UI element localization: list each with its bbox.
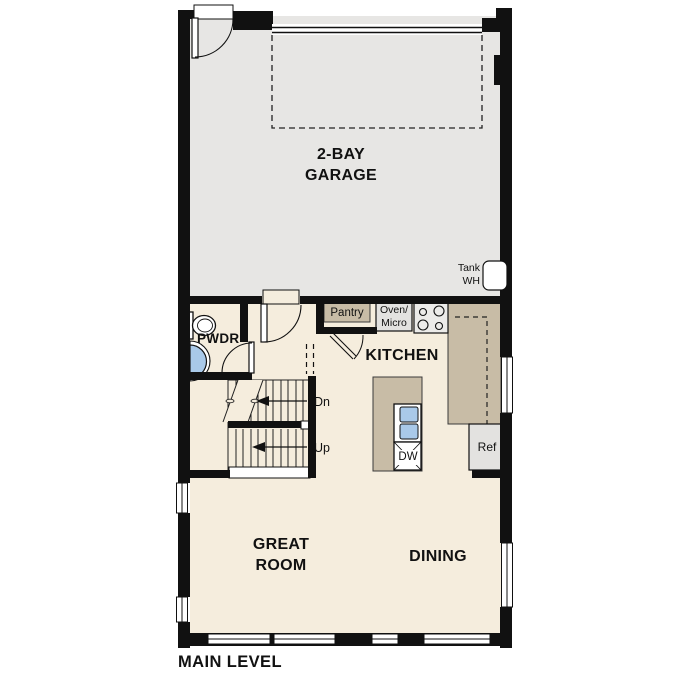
window-right-kitchen	[502, 357, 513, 413]
garage-label: 2-BAY GARAGE	[305, 144, 377, 186]
garage-wall-notch	[494, 55, 500, 85]
pwdr-label: PWDR	[197, 330, 239, 348]
dining-label: DINING	[409, 546, 467, 567]
cooktop-icon	[414, 303, 448, 333]
kitchen-label: KITCHEN	[365, 345, 438, 366]
stair-landing	[229, 467, 310, 478]
sink-basin-top	[400, 407, 418, 422]
oven-micro-label: Oven/ Micro	[380, 304, 408, 330]
sink-basin-bottom	[400, 424, 418, 439]
window-bottom-1	[208, 634, 270, 644]
plan-title: MAIN LEVEL	[178, 652, 282, 674]
tank-wh-label: Tank WH	[420, 262, 480, 288]
great-room-label: GREAT ROOM	[253, 534, 309, 576]
pantry-label: Pantry	[330, 306, 363, 321]
window-bottom-2	[274, 634, 335, 644]
stair-divider-wall	[228, 421, 301, 428]
stairs-up-label: Up	[314, 440, 330, 457]
stairs-down-label: Dn	[314, 394, 330, 411]
garage-door	[272, 24, 482, 35]
window-right-dining	[502, 543, 513, 607]
window-bottom-4	[424, 634, 490, 644]
tank-water-heater-icon	[483, 261, 507, 290]
window-left-1	[177, 483, 188, 513]
refrigerator-label: Ref	[478, 440, 497, 456]
floor-plan: 2-BAY GARAGE Tank WH PWDR Pantry Oven/ M…	[0, 0, 687, 687]
window-bottom-3	[372, 634, 398, 644]
window-left-2	[177, 597, 188, 622]
dishwasher-label: DW	[397, 450, 418, 465]
floor-plan-drawing	[0, 0, 687, 687]
